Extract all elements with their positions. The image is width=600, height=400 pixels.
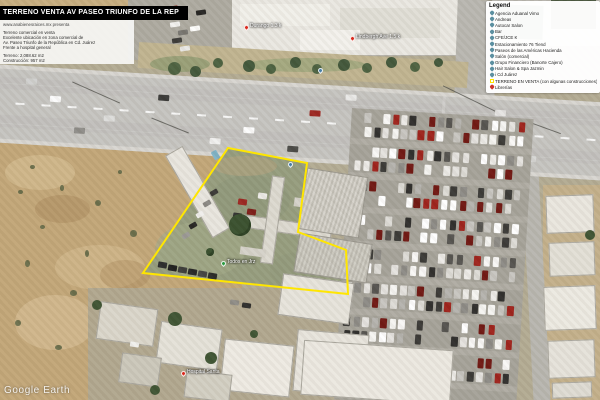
legend-item-label: Autocar Salon (495, 23, 523, 28)
legend-item-label: Agencia Aduanal Vimo (495, 11, 539, 16)
legend-item: Librerías (489, 84, 597, 90)
map-pin-icon (489, 29, 495, 35)
pin-icon (349, 35, 356, 42)
map-pin-icon (489, 47, 495, 53)
pin-icon (220, 260, 227, 267)
pin-icon (317, 67, 324, 74)
legend-item-label: Grupo Financiero (Banorte Cajero) (495, 60, 563, 65)
parcel-outline-icon (489, 78, 495, 84)
description-line: Frente a hospital general (3, 45, 131, 50)
legend-items: Agencia Aduanal VimoAndreasAutocar Salon… (489, 10, 597, 90)
placemark-label: Lindbergh Ave 1.5 k (356, 34, 400, 40)
legend-item-label: TERRENO EN VENTA (con algunas construcci… (495, 79, 597, 84)
pin-icon (287, 161, 294, 168)
legend-item-label: Estacionamiento 76 Tiend (495, 42, 546, 47)
listing-stats: Terreno: 2,088.62 m2Construcción: 957 m2 (3, 53, 131, 63)
legend-item-label: Hair Salon & Spa Jazmin (495, 66, 544, 71)
map-pin-icon (489, 35, 495, 41)
placemark-label: Hospital Santa (187, 369, 220, 375)
listing-title-bar: TERRENO VENTA AV PASEO TRIUNFO DE LA REP (0, 6, 188, 20)
map-pin-icon (489, 66, 495, 72)
legend-item-label: Andreas (495, 17, 511, 22)
listing-description: Terreno comercial en ventaExcelente ubic… (3, 30, 131, 50)
legend: Legend Agencia Aduanal VimoAndreasAutoca… (486, 1, 600, 93)
map-pin-icon (489, 10, 495, 16)
map-pin-icon (489, 22, 495, 28)
presenter-line: www.anabienesraices.mx presenta (3, 22, 131, 27)
google-earth-watermark: Google Earth (4, 385, 70, 396)
legend-title: Legend (489, 3, 597, 9)
legend-item-label: Paseos de las Américas Hacienda (495, 48, 562, 53)
placemark-label: Todos en Jrz (227, 259, 255, 265)
listing-info-panel: www.anabienesraices.mx presenta Terreno … (0, 20, 134, 64)
placemark-label: Durango 1.3 k (250, 23, 281, 29)
pin-icon (180, 370, 187, 377)
legend-item-label: CFE/JCE K (495, 35, 517, 40)
legend-item-label: Librerías (495, 85, 512, 90)
pin-icon (243, 24, 250, 31)
map-pin-icon (489, 41, 495, 47)
map-pin-icon (489, 16, 495, 22)
stat-line: Construcción: 957 m2 (3, 58, 131, 63)
google-earth-satellite-view[interactable]: Durango 1.3 kLindbergh Ave 1.5 kTodos en… (0, 0, 600, 400)
legend-item-label: Bar (495, 29, 502, 34)
map-pin-icon (489, 72, 495, 78)
map-pin-icon (489, 53, 495, 59)
legend-item-label: Salón (comercial) (495, 54, 529, 59)
legend-item: TERRENO EN VENTA (con algunas construcci… (489, 78, 597, 84)
map-pin-icon (489, 84, 495, 90)
legend-item-label: i Cd Juárez (495, 72, 517, 77)
map-pin-icon (489, 60, 495, 66)
